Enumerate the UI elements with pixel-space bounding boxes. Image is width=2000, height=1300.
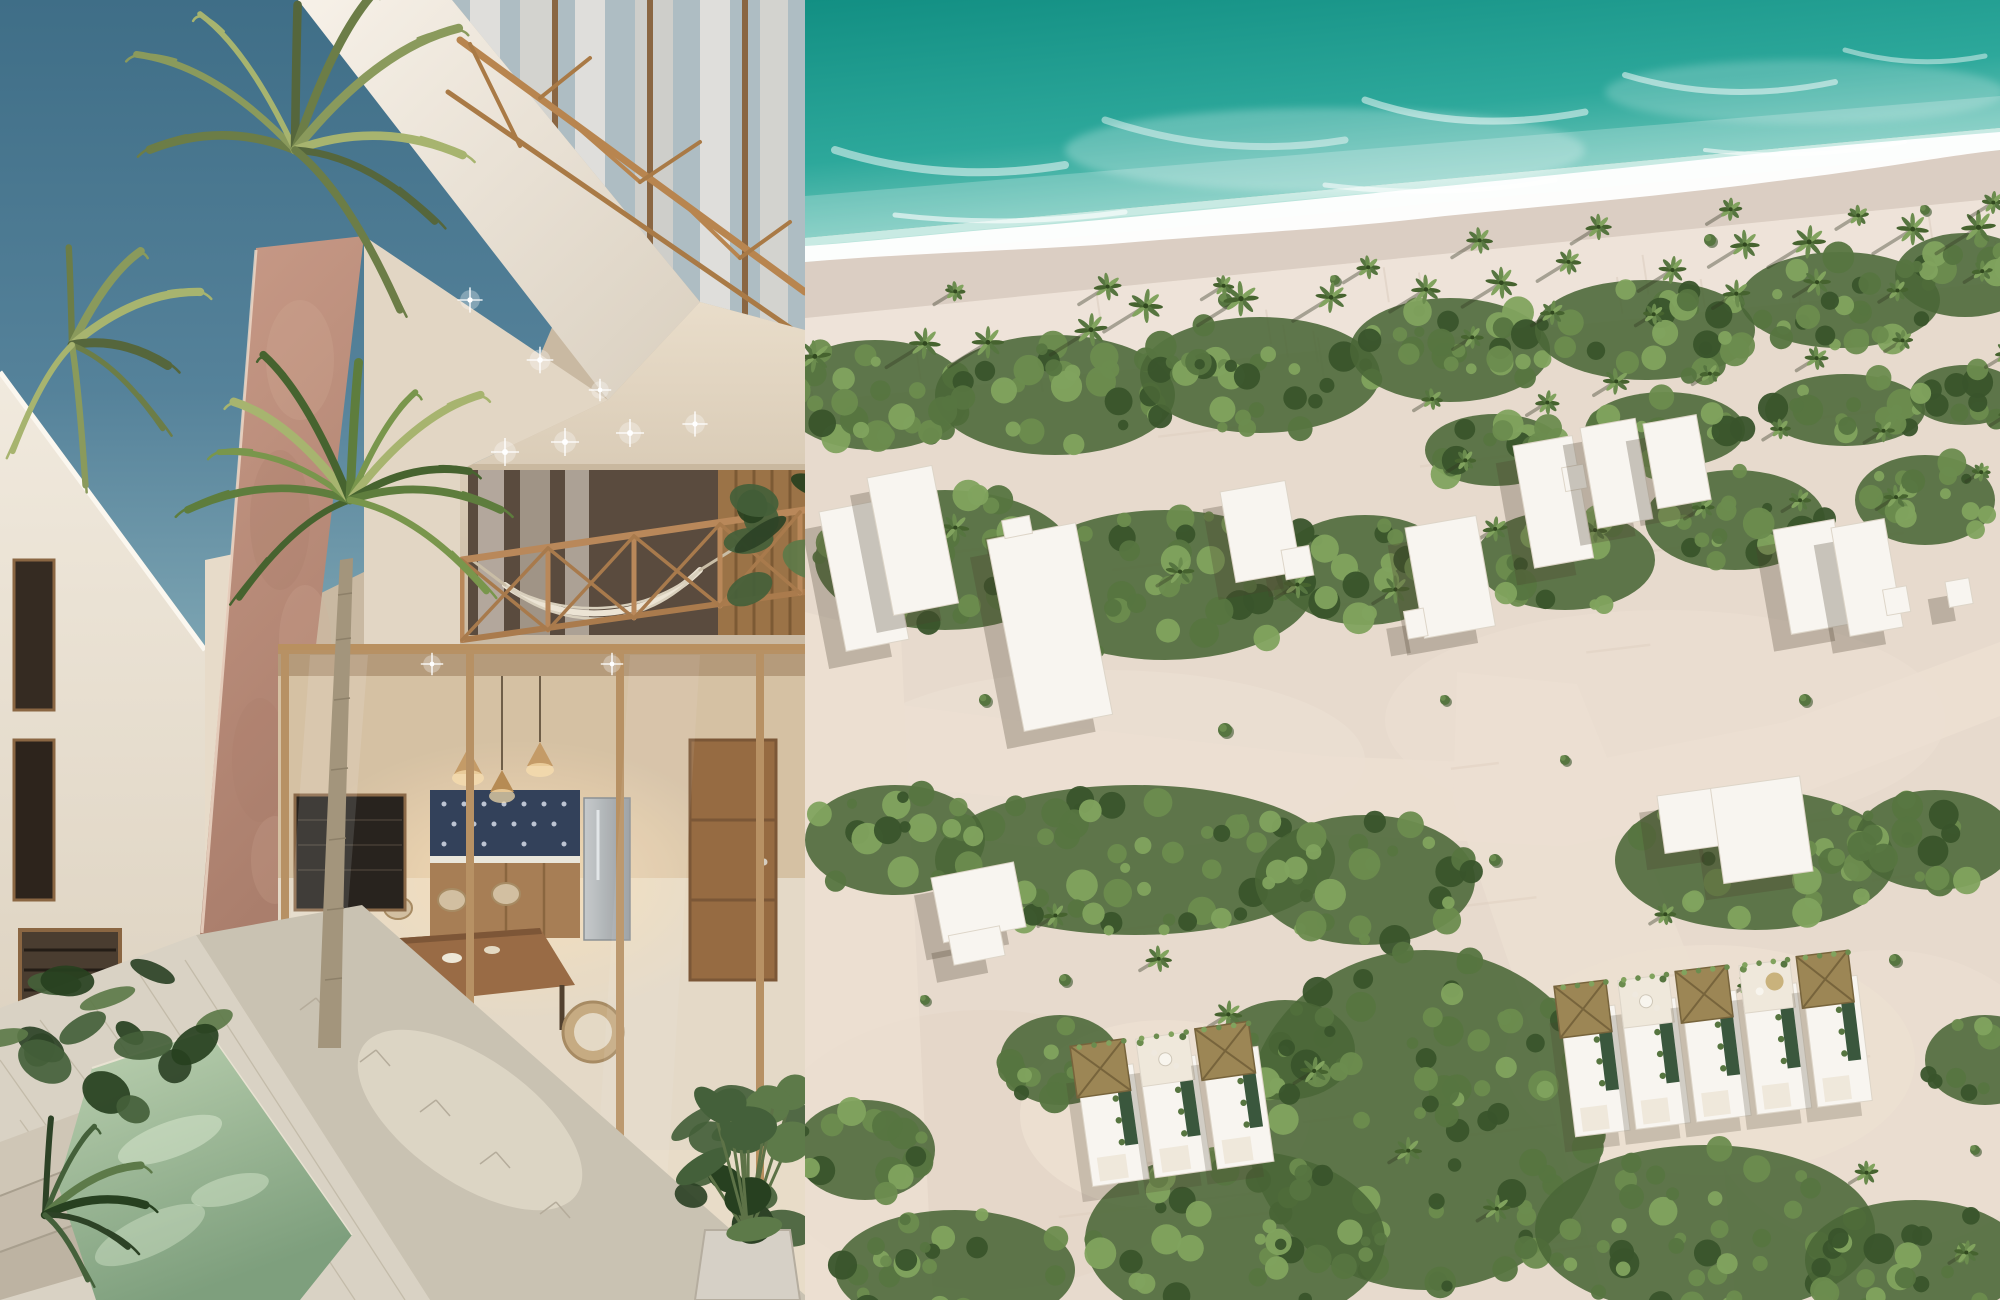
two-panel-architectural-render [0,0,2000,1300]
foam-cloud [1605,60,2000,124]
right-panel-aerial-render [805,0,2000,1300]
left-panel-courtyard-render [0,0,805,1300]
villa-row [1061,1020,1276,1202]
